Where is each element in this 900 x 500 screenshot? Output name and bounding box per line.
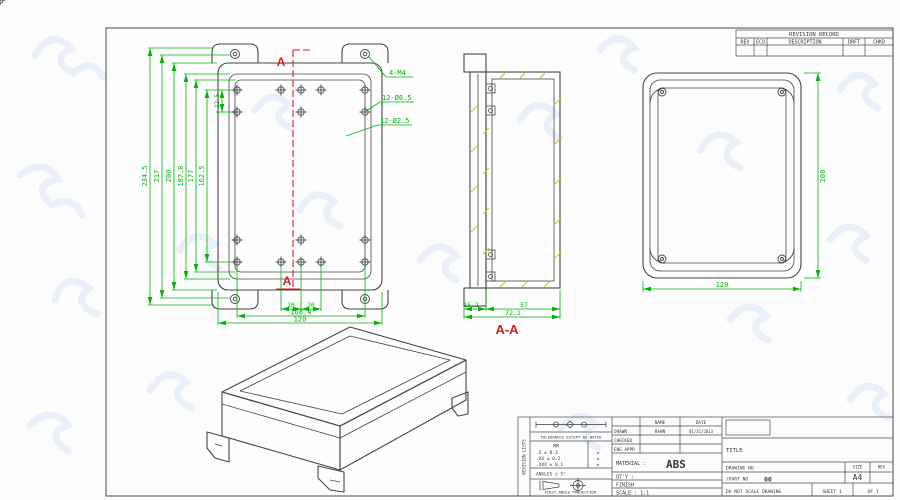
drawn-date: 01/31/2013 bbox=[689, 429, 714, 434]
drawn-label: DRAWN bbox=[614, 429, 627, 435]
front-view bbox=[0, 0, 388, 309]
rev-col-header: REV bbox=[740, 40, 749, 46]
iso-front-face bbox=[222, 392, 340, 470]
projection-label: FIRST ANGLE PROJECTION bbox=[544, 490, 596, 495]
iso-top-face bbox=[222, 327, 466, 426]
iso-side-face bbox=[340, 360, 466, 470]
tolerance-row-2: .XX ± 0.2 bbox=[536, 456, 561, 462]
size-value: A4 bbox=[853, 473, 863, 482]
finish-label: FINISH bbox=[616, 483, 634, 489]
callout-4-m4: 4-M4 bbox=[389, 69, 406, 77]
tolerance-mark-1: ± bbox=[597, 451, 600, 456]
back-outline bbox=[643, 73, 801, 278]
dim-234-5: 234.5 bbox=[141, 165, 149, 186]
dim-72-2: 72.2 bbox=[505, 309, 521, 317]
angles-tolerance: ANGLES ± 5° bbox=[536, 472, 566, 478]
material-value: ABS bbox=[666, 458, 686, 471]
date-header: DATE bbox=[696, 420, 707, 426]
drft-col-header: DRFT bbox=[848, 40, 860, 46]
scale-label: SCALE : 1:1 bbox=[616, 491, 649, 497]
size-label: SIZE bbox=[853, 465, 863, 470]
callout-12-d2-5: 12-Ø2.5 bbox=[380, 117, 410, 125]
tolerance-row-1: .X ± 0.3 bbox=[536, 450, 558, 456]
section-view bbox=[464, 54, 560, 306]
section-view-label: A-A bbox=[495, 322, 519, 337]
dim-200-back: 200 bbox=[819, 170, 827, 183]
tolerances-heading: TOLERANCES EXCEPT AS NOTED bbox=[541, 435, 603, 440]
ear-top-right bbox=[342, 44, 388, 63]
callout-12-d6-5: 12-Ø6.5 bbox=[382, 94, 412, 102]
eco-col-header: ECO bbox=[756, 40, 765, 46]
checked-label: CHECKED bbox=[614, 438, 633, 444]
of-label: OF 1 bbox=[867, 489, 878, 495]
section-marker-bottom: A bbox=[283, 274, 292, 288]
dim-200: 200 bbox=[165, 170, 173, 183]
dim-177: 177 bbox=[187, 170, 195, 183]
section-marker-top: A bbox=[277, 55, 286, 69]
front-body-outline bbox=[218, 63, 382, 290]
part-no-value: 00 bbox=[764, 476, 772, 484]
rev-label: REV bbox=[878, 465, 886, 470]
sheet-label: SHEET 1 bbox=[822, 489, 842, 495]
dim-217: 217 bbox=[153, 170, 161, 183]
title-label: TITLE bbox=[726, 448, 743, 454]
name-header: NAME bbox=[655, 420, 666, 426]
drawing-sheet: REVISION RECORD REV ECO DESCRIPTION DRFT… bbox=[0, 0, 900, 500]
drawn-name: RAWN bbox=[655, 429, 666, 435]
screw-bosses bbox=[486, 84, 495, 281]
description-col-header: DESCRIPTION bbox=[788, 40, 821, 46]
dim-120-front: 120 bbox=[294, 316, 307, 324]
qty-label: QT'Y : bbox=[616, 475, 634, 481]
tolerance-mark-3: ± bbox=[597, 463, 600, 468]
tolerance-mark-2: ± bbox=[597, 457, 600, 462]
chkd-col-header: CHKD bbox=[873, 40, 885, 46]
dim-57: 57 bbox=[520, 301, 528, 309]
back-corner-screws bbox=[650, 88, 794, 263]
drawing-no-label: DRAWING NO bbox=[726, 466, 754, 472]
eng-appr-label: ENG APPR bbox=[614, 447, 635, 453]
logo-box bbox=[726, 420, 770, 435]
dim-22-5: 22.5 bbox=[214, 93, 221, 108]
tolerance-row-3: .XXX ± 0.1 bbox=[536, 462, 563, 468]
flange-tab-top bbox=[464, 54, 486, 72]
dim-120-back: 120 bbox=[716, 281, 729, 289]
dim-15-2: 15.2 bbox=[463, 301, 479, 309]
ear-top-left bbox=[212, 44, 258, 63]
dim-187-8: 187.8 bbox=[177, 165, 185, 186]
ear-bottom-left bbox=[212, 290, 258, 309]
revision-record-labels: REVISION RECORD REV ECO DESCRIPTION DRFT… bbox=[740, 32, 885, 46]
back-inner-line-1 bbox=[650, 80, 794, 271]
back-inner-line-2 bbox=[658, 88, 786, 263]
do-not-scale-note: DO NOT SCALE DRAWING bbox=[726, 489, 782, 495]
side-strip-label: REVISION LISTS bbox=[522, 439, 527, 475]
material-label: MATERIAL : bbox=[616, 461, 646, 467]
part-no-label: /PART NO bbox=[726, 477, 748, 483]
tolerance-unit: MM bbox=[553, 444, 559, 450]
revision-title: REVISION RECORD bbox=[789, 32, 839, 38]
dim-162-5: 162.5 bbox=[198, 165, 206, 186]
back-view bbox=[643, 73, 801, 278]
isometric-view bbox=[207, 327, 468, 492]
cad-canvas: REVISION RECORD REV ECO DESCRIPTION DRFT… bbox=[0, 0, 900, 500]
front-inner-line-1 bbox=[229, 74, 371, 279]
